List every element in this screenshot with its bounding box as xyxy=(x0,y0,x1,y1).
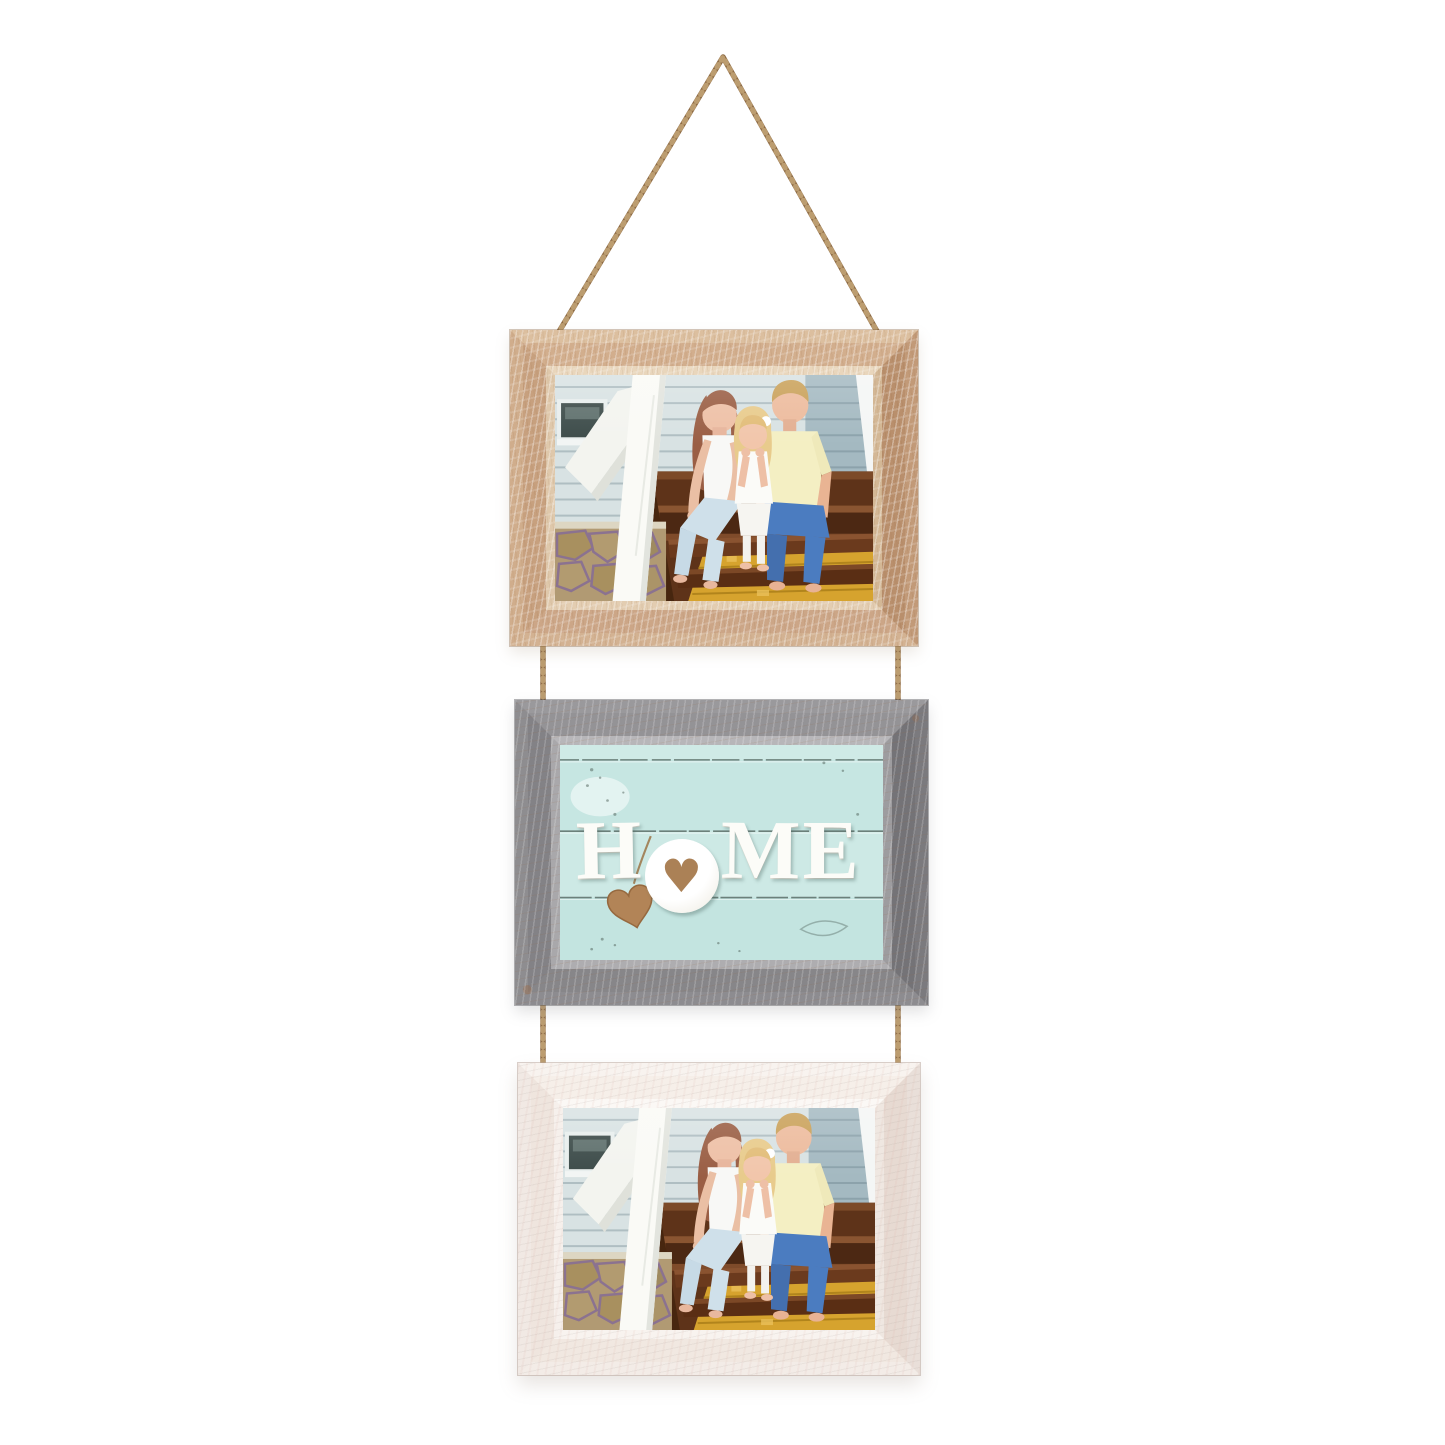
home-letter-e: E xyxy=(803,809,861,893)
home-letter-o-heart: ♥ xyxy=(645,839,719,913)
middle-frame: H♥ME xyxy=(515,700,928,1005)
home-sign: H♥ME xyxy=(576,809,861,899)
home-sign-panel: H♥ME xyxy=(560,745,883,960)
middle-frame-panel: H♥ME xyxy=(560,745,883,960)
product-image: H♥ME xyxy=(0,0,1445,1445)
top-frame xyxy=(510,330,918,646)
home-letter-m: M xyxy=(721,809,803,894)
heart-icon: ♥ xyxy=(645,839,719,913)
top-frame-photo xyxy=(555,375,873,601)
family-photo xyxy=(563,1108,875,1330)
family-photo xyxy=(555,375,873,601)
bottom-frame-photo xyxy=(563,1108,875,1330)
rope-triangle xyxy=(557,57,879,335)
home-letter-h: H xyxy=(575,808,644,893)
bottom-frame xyxy=(518,1063,920,1375)
